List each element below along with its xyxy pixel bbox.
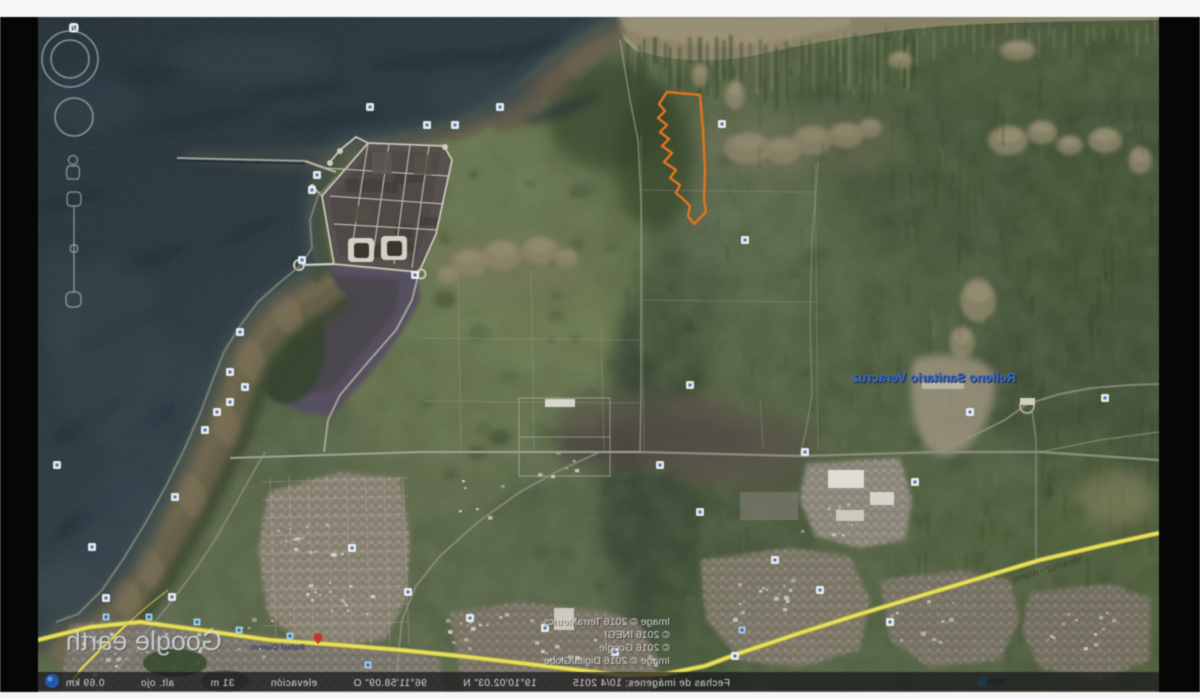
svg-text:© 2016 Google: © 2016 Google — [599, 642, 670, 654]
svg-text:Image © 2016 DigitalGlobe: Image © 2016 DigitalGlobe — [544, 655, 670, 667]
svg-text:© 2016 INEGI: © 2016 INEGI — [604, 629, 670, 641]
svg-text:Relleno Sanitario Veracruz: Relleno Sanitario Veracruz — [852, 370, 1017, 385]
svg-text:Rafael Cuervo: Rafael Cuervo — [251, 643, 305, 652]
svg-text:Image © 2016 TerraMetrics: Image © 2016 TerraMetrics — [543, 616, 670, 628]
svg-text:Fechas de imágenes: 10/4 2015: Fechas de imágenes: 10/4 2015 19°10'02.0… — [65, 678, 730, 689]
svg-text:Google earth: Google earth — [66, 626, 222, 656]
svg-text:N: N — [71, 26, 76, 33]
